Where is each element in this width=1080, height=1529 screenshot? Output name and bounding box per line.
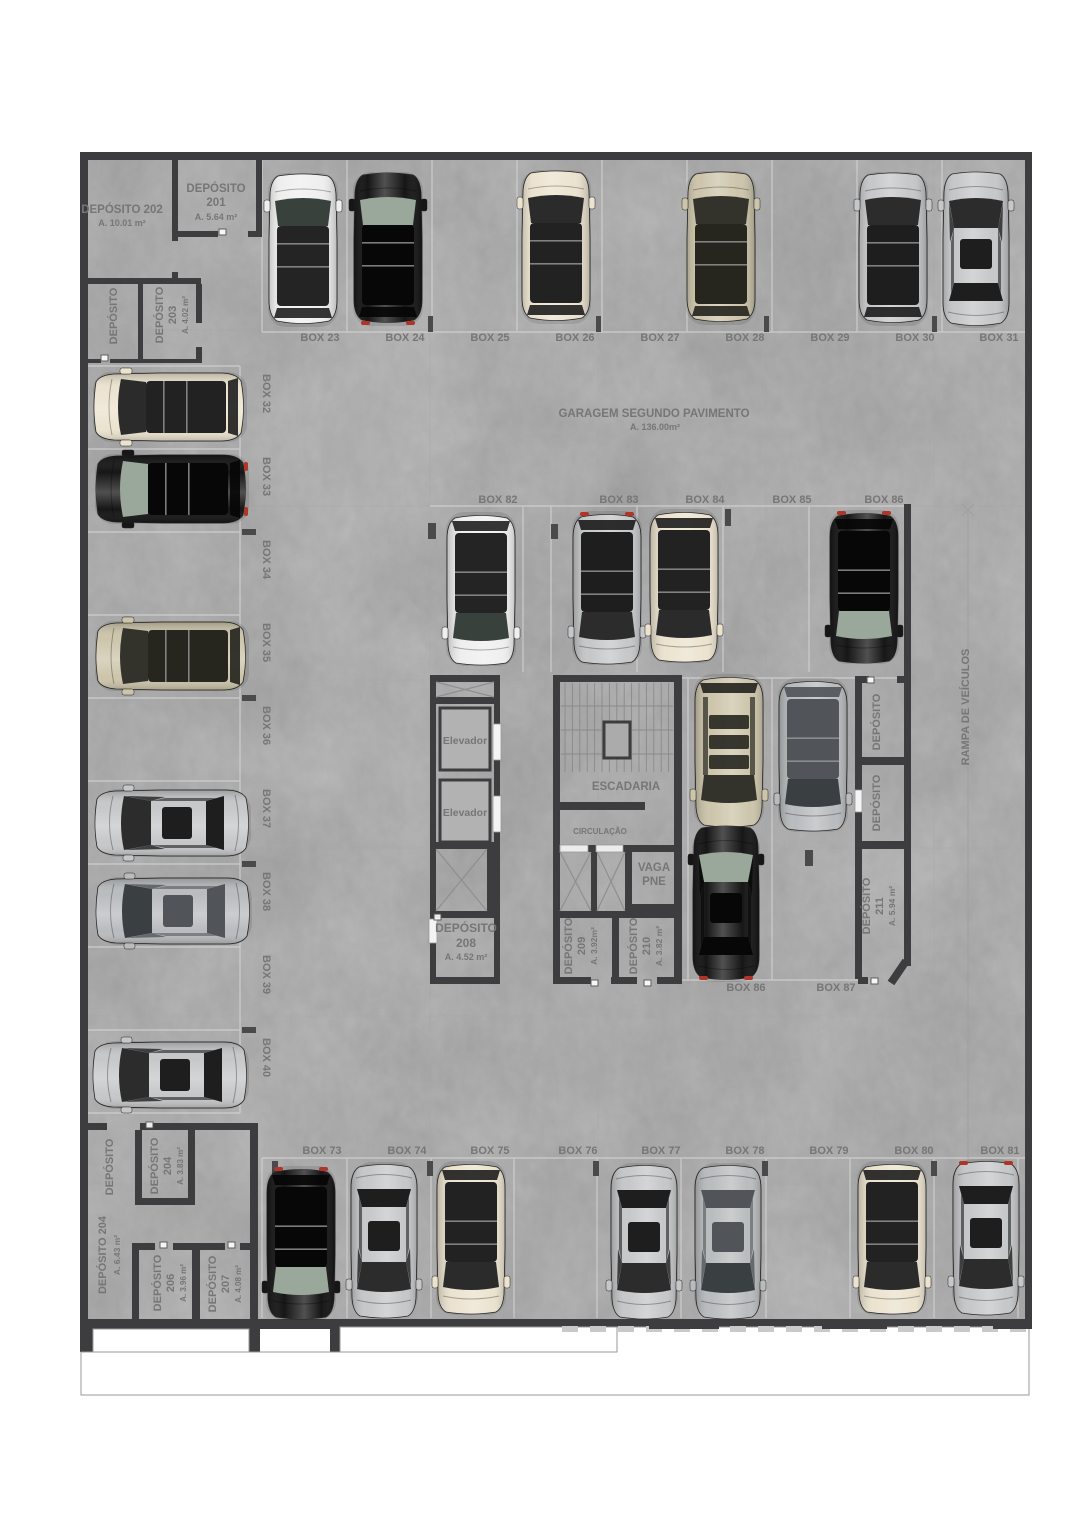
svg-text:ESCADARIA: ESCADARIA: [592, 781, 660, 793]
svg-text:BOX 32: BOX 32: [260, 374, 272, 413]
svg-text:CIRCULAÇÃO: CIRCULAÇÃO: [573, 827, 627, 836]
svg-text:BOX 74: BOX 74: [387, 1145, 427, 1157]
svg-text:A. 3.92m²: A. 3.92m²: [589, 927, 599, 965]
svg-text:BOX 78: BOX 78: [725, 1145, 764, 1157]
svg-text:A. 5.94 m²: A. 5.94 m²: [887, 886, 897, 926]
svg-text:DEPÓSITO: DEPÓSITO: [153, 286, 166, 343]
svg-text:204: 204: [162, 1156, 174, 1175]
svg-text:DEPÓSITO: DEPÓSITO: [562, 917, 575, 974]
svg-text:211: 211: [874, 897, 886, 915]
svg-text:BOX 25: BOX 25: [470, 332, 509, 344]
svg-text:A. 4.52 m²: A. 4.52 m²: [445, 952, 488, 962]
svg-text:A. 3.82 m²: A. 3.82 m²: [654, 926, 664, 966]
svg-text:Elevador: Elevador: [443, 735, 487, 747]
svg-text:BOX 79: BOX 79: [809, 1145, 848, 1157]
svg-text:DEPÓSITO: DEPÓSITO: [148, 1137, 161, 1194]
svg-text:BOX 27: BOX 27: [640, 332, 679, 344]
svg-text:A. 4.02 m²: A. 4.02 m²: [181, 296, 190, 334]
svg-text:207: 207: [220, 1275, 232, 1293]
svg-text:BOX 40: BOX 40: [260, 1038, 272, 1077]
svg-text:A. 4.08 m²: A. 4.08 m²: [234, 1265, 243, 1303]
svg-text:DEPÓSITO: DEPÓSITO: [627, 917, 640, 974]
svg-text:DEPÓSITO: DEPÓSITO: [870, 693, 883, 750]
svg-text:DEPÓSITO: DEPÓSITO: [107, 287, 120, 344]
svg-text:BOX 86: BOX 86: [864, 494, 903, 506]
svg-text:A. 3.96 m²: A. 3.96 m²: [179, 1264, 188, 1302]
svg-text:Elevador: Elevador: [443, 807, 487, 819]
svg-text:BOX 33: BOX 33: [260, 457, 272, 496]
svg-text:DEPÓSITO: DEPÓSITO: [151, 1254, 164, 1311]
svg-text:DEPÓSITO: DEPÓSITO: [186, 182, 245, 195]
svg-text:BOX 73: BOX 73: [302, 1145, 341, 1157]
svg-text:BOX 23: BOX 23: [300, 332, 339, 344]
svg-text:DEPÓSITO 204: DEPÓSITO 204: [96, 1215, 109, 1294]
svg-text:BOX 81: BOX 81: [980, 1145, 1019, 1157]
svg-text:BOX 24: BOX 24: [385, 332, 425, 344]
svg-text:DEPÓSITO: DEPÓSITO: [103, 1138, 116, 1195]
svg-text:BOX 29: BOX 29: [810, 332, 849, 344]
svg-text:BOX 86: BOX 86: [726, 982, 765, 994]
svg-text:A. 136.00m²: A. 136.00m²: [630, 422, 680, 432]
svg-text:BOX 85: BOX 85: [772, 494, 811, 506]
svg-text:BOX 84: BOX 84: [685, 494, 725, 506]
svg-text:BOX 35: BOX 35: [260, 623, 272, 662]
svg-text:DEPÓSITO: DEPÓSITO: [206, 1255, 219, 1312]
svg-text:206: 206: [165, 1274, 177, 1292]
svg-text:208: 208: [456, 936, 476, 950]
svg-text:GARAGEM SEGUNDO PAVIMENTO: GARAGEM SEGUNDO PAVIMENTO: [558, 408, 749, 420]
svg-text:BOX 39: BOX 39: [260, 955, 272, 994]
svg-text:BOX 80: BOX 80: [894, 1145, 933, 1157]
svg-text:PNE: PNE: [642, 876, 666, 888]
svg-text:DEPÓSITO 202: DEPÓSITO 202: [81, 203, 163, 216]
svg-text:A. 6.43 m²: A. 6.43 m²: [112, 1235, 122, 1275]
svg-text:A. 10.01 m²: A. 10.01 m²: [98, 218, 146, 228]
svg-text:203: 203: [167, 306, 179, 324]
svg-text:BOX 26: BOX 26: [555, 332, 594, 344]
svg-text:BOX 30: BOX 30: [895, 332, 934, 344]
svg-text:BOX 34: BOX 34: [260, 540, 272, 580]
svg-text:DEPÓSITO: DEPÓSITO: [435, 920, 497, 935]
svg-text:DEPÓSITO: DEPÓSITO: [870, 774, 883, 831]
svg-text:A. 5.64 m²: A. 5.64 m²: [195, 212, 238, 222]
svg-text:DEPÓSITO: DEPÓSITO: [860, 877, 873, 934]
svg-text:210: 210: [641, 937, 653, 955]
svg-text:BOX 83: BOX 83: [599, 494, 638, 506]
svg-text:BOX 76: BOX 76: [558, 1145, 597, 1157]
svg-text:BOX 87: BOX 87: [816, 982, 855, 994]
svg-text:A. 3.83 m²: A. 3.83 m²: [176, 1147, 185, 1185]
svg-text:BOX 37: BOX 37: [260, 789, 272, 828]
svg-text:RAMPA DE VEÍCULOS: RAMPA DE VEÍCULOS: [959, 649, 972, 766]
svg-text:BOX 28: BOX 28: [725, 332, 764, 344]
svg-text:BOX 75: BOX 75: [470, 1145, 509, 1157]
svg-text:BOX 77: BOX 77: [641, 1145, 680, 1157]
svg-text:209: 209: [576, 937, 588, 955]
svg-text:BOX 82: BOX 82: [478, 494, 517, 506]
svg-text:201: 201: [206, 197, 226, 209]
svg-text:VAGA: VAGA: [638, 862, 670, 874]
svg-text:BOX 36: BOX 36: [260, 706, 272, 745]
svg-text:BOX 31: BOX 31: [979, 332, 1018, 344]
svg-text:BOX 38: BOX 38: [260, 872, 272, 911]
